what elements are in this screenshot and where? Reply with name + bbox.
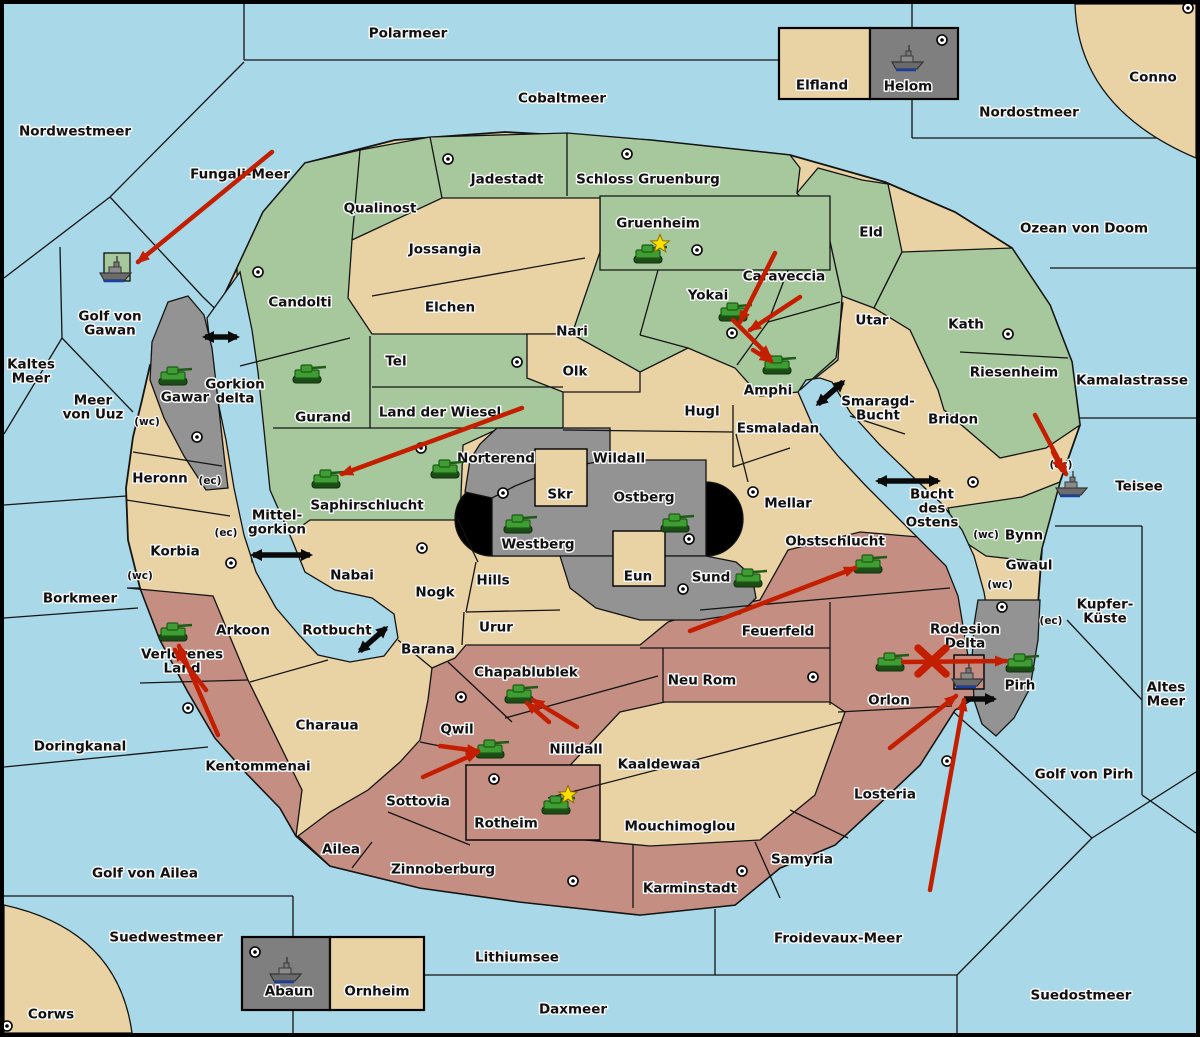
label-wildall: Wildall [593, 451, 645, 467]
svg-text:Tel: Tel [385, 354, 406, 370]
sea-label-golf-von-ailea: Golf von Ailea [92, 866, 198, 882]
svg-text:von Uuz: von Uuz [63, 407, 124, 423]
supply-dot-mellar [748, 487, 758, 497]
label-elfland: Elfland [796, 78, 848, 94]
label-sund: Sund [692, 570, 731, 586]
svg-text:Zinnoberburg: Zinnoberburg [391, 862, 495, 878]
svg-text:Sottovia: Sottovia [386, 794, 450, 810]
svg-text:Caraveccia: Caraveccia [743, 269, 825, 285]
coast-tag-1: (ec) [199, 475, 222, 487]
svg-text:Golf von Pirh: Golf von Pirh [1035, 767, 1134, 783]
label-nogk: Nogk [415, 585, 455, 601]
sea-label-altes-meer: AltesMeer [1147, 680, 1186, 710]
label-nilldall: Nilldall [549, 742, 602, 758]
svg-text:Nilldall: Nilldall [549, 742, 602, 758]
svg-text:Norterend: Norterend [457, 451, 535, 467]
sea-label-suedwestmeer: Suedwestmeer [109, 930, 223, 946]
svg-text:Saphirschlucht: Saphirschlucht [310, 498, 424, 514]
svg-text:Nogk: Nogk [415, 585, 455, 601]
label-heronn: Heronn [132, 471, 188, 487]
label-mellar: Mellar [764, 496, 812, 512]
supply-dot-schloss-gruenburg [622, 149, 632, 159]
label-gawar: Gawar [161, 390, 210, 406]
supply-dot-westberg [498, 488, 508, 498]
supply-dot-neu-rom [808, 672, 818, 682]
supply-dot-abaun [250, 947, 260, 957]
label-kentommenai: Kentommenai [205, 759, 310, 775]
label-qualinost: Qualinost [344, 201, 417, 217]
label-gurand: Gurand [295, 410, 351, 426]
svg-text:Barana: Barana [401, 642, 455, 658]
label-samyria: Samyria [771, 852, 833, 868]
svg-text:Samyria: Samyria [771, 852, 833, 868]
label-elchen: Elchen [425, 300, 475, 316]
supply-dot-nabai [417, 543, 427, 553]
svg-text:Westberg: Westberg [501, 537, 574, 553]
label-korbia: Korbia [150, 544, 200, 560]
supply-dot-yokai [727, 328, 737, 338]
svg-text:Gurand: Gurand [295, 410, 351, 426]
sea-label-froidevaux-meer: Froidevaux-Meer [774, 931, 902, 947]
svg-text:Charaua: Charaua [295, 718, 358, 734]
supply-dot-kentommenai [183, 703, 193, 713]
svg-text:Gawan: Gawan [84, 323, 135, 339]
label-eld: Eld [859, 225, 883, 241]
label-schloss-gruenburg: Schloss Gruenburg [576, 172, 720, 188]
sea-label-kamalastrasse: Kamalastrasse [1076, 373, 1188, 389]
supply-dot-bridon [968, 477, 978, 487]
supply-dot-candolti [253, 267, 263, 277]
sea-label-golf-von-gawan: Golf vonGawan [78, 309, 141, 339]
label-candolti: Candolti [268, 295, 331, 311]
supply-dot-karminstadt [737, 866, 747, 876]
label-skr: Skr [547, 487, 573, 503]
move-arrow-7 [903, 661, 1006, 662]
label-urur: Urur [479, 620, 513, 636]
supply-dot-gruenheim [692, 245, 702, 255]
strategy-map-stage: (wc)(ec)(ec)(wc)(wc)(ec)(wc)(ec)Polarmee… [0, 0, 1200, 1037]
svg-text:Froidevaux-Meer: Froidevaux-Meer [774, 931, 902, 947]
supply-dot-pirh [997, 602, 1007, 612]
label-sottovia: Sottovia [386, 794, 450, 810]
svg-text:Rotbucht: Rotbucht [302, 623, 372, 639]
label-charaua: Charaua [295, 718, 358, 734]
svg-text:Bynn: Bynn [1005, 528, 1043, 544]
svg-text:Kaaldewaa: Kaaldewaa [618, 757, 701, 773]
coast-tag-6: (wc) [987, 579, 1013, 591]
label-rotheim: Rotheim [474, 816, 538, 832]
label-corws: Corws [28, 1007, 74, 1023]
sea-label-daxmeer: Daxmeer [539, 1002, 607, 1018]
label-ailea: Ailea [322, 842, 360, 858]
supply-dot-gawar [192, 432, 202, 442]
svg-text:Bucht: Bucht [856, 408, 901, 424]
svg-text:Hills: Hills [476, 573, 509, 589]
svg-text:Teisee: Teisee [1115, 479, 1163, 495]
coast-tag-4: (wc) [973, 529, 999, 541]
supply-dot-tel [512, 357, 522, 367]
svg-text:Heronn: Heronn [132, 471, 188, 487]
sea-label-lithiumsee: Lithiumsee [475, 950, 559, 966]
svg-text:Kath: Kath [948, 317, 984, 333]
label-olk: Olk [562, 364, 588, 380]
svg-text:Gawar: Gawar [161, 390, 210, 406]
svg-text:Riesenheim: Riesenheim [970, 365, 1058, 381]
sea-label-teisee: Teisee [1115, 479, 1163, 495]
label-abaun: Abaun [265, 984, 313, 1000]
sea-label-cobaltmeer: Cobaltmeer [518, 91, 606, 107]
sea-label-nordwestmeer: Nordwestmeer [19, 124, 131, 140]
label-chapablublek: Chapablublek [474, 665, 579, 681]
sea-label-golf-von-pirh: Golf von Pirh [1035, 767, 1134, 783]
label-ornheim: Ornheim [344, 984, 409, 1000]
svg-text:Obstschlucht: Obstschlucht [785, 534, 885, 550]
svg-text:Ostens: Ostens [906, 515, 959, 531]
svg-text:Rotheim: Rotheim [474, 816, 538, 832]
coast-tag-2: (ec) [215, 527, 238, 539]
sea-label-kaltes-meer: KaltesMeer [7, 357, 55, 387]
coast-tag-3: (wc) [127, 570, 153, 582]
supply-dot-qwil [456, 692, 466, 702]
label-bynn: Bynn [1005, 528, 1043, 544]
svg-text:Ornheim: Ornheim [344, 984, 409, 1000]
label-ostberg: Ostberg [613, 490, 674, 506]
label-kath: Kath [948, 317, 984, 333]
label-esmaladan: Esmaladan [737, 421, 820, 437]
label-mouchimoglou: Mouchimoglou [624, 819, 735, 835]
label-losteria: Losteria [854, 787, 916, 803]
svg-text:Nordwestmeer: Nordwestmeer [19, 124, 131, 140]
svg-text:Orlon: Orlon [868, 693, 910, 709]
label-conno: Conno [1129, 70, 1177, 86]
svg-text:Borkmeer: Borkmeer [43, 591, 118, 607]
svg-text:Gruenheim: Gruenheim [616, 216, 700, 232]
label-arkoon: Arkoon [216, 623, 270, 639]
label-pirh: Pirh [1005, 678, 1036, 694]
svg-text:Jossangia: Jossangia [408, 242, 482, 258]
svg-text:Meer: Meer [1147, 694, 1186, 710]
svg-text:Helom: Helom [884, 79, 932, 95]
svg-text:Urur: Urur [479, 620, 513, 636]
sea-label-nordostmeer: Nordostmeer [979, 105, 1079, 121]
label-zinnoberburg: Zinnoberburg [391, 862, 495, 878]
svg-text:gorkion: gorkion [248, 522, 306, 538]
svg-text:Yokai: Yokai [687, 288, 729, 304]
svg-text:Nordostmeer: Nordostmeer [979, 105, 1079, 121]
svg-text:Ailea: Ailea [322, 842, 360, 858]
svg-text:Jadestadt: Jadestadt [470, 172, 544, 188]
svg-text:Mellar: Mellar [764, 496, 812, 512]
label-nabai: Nabai [330, 568, 374, 584]
svg-text:Polarmeer: Polarmeer [369, 26, 448, 42]
supply-dot-conno [1183, 3, 1193, 13]
sea-label-kupfer-kueste: Kupfer-Küste [1077, 597, 1134, 627]
label-eun: Eun [624, 569, 652, 585]
label-hugl: Hugl [684, 404, 719, 420]
label-westberg: Westberg [501, 537, 574, 553]
supply-dot-kath [1003, 329, 1013, 339]
sea-label-polarmeer: Polarmeer [369, 26, 448, 42]
svg-text:Doringkanal: Doringkanal [34, 739, 126, 755]
label-orlon: Orlon [868, 693, 910, 709]
svg-text:Eun: Eun [624, 569, 652, 585]
sea-label-rotbucht: Rotbucht [302, 623, 372, 639]
label-tel: Tel [385, 354, 406, 370]
svg-text:Golf von Ailea: Golf von Ailea [92, 866, 198, 882]
svg-text:Suedwestmeer: Suedwestmeer [109, 930, 223, 946]
svg-text:Conno: Conno [1129, 70, 1177, 86]
svg-text:Qualinost: Qualinost [344, 201, 417, 217]
label-qwil: Qwil [440, 722, 473, 738]
sea-label-suedostmeer: Suedostmeer [1031, 988, 1132, 1004]
supply-dot-zinnoberburg [568, 876, 578, 886]
label-norterend: Norterend [457, 451, 535, 467]
svg-text:Delta: Delta [945, 636, 986, 652]
supply-dot-jadestadt [443, 154, 453, 164]
svg-text:Kentommenai: Kentommenai [205, 759, 310, 775]
label-barana: Barana [401, 642, 455, 658]
svg-text:Mouchimoglou: Mouchimoglou [624, 819, 735, 835]
svg-text:Neu Rom: Neu Rom [668, 673, 737, 689]
sea-label-ozean-von-doom: Ozean von Doom [1020, 221, 1148, 237]
sea-label-mittel-gorkion: Mittel-gorkion [248, 508, 306, 538]
label-gruenheim: Gruenheim [616, 216, 700, 232]
svg-text:Gwaul: Gwaul [1006, 558, 1053, 574]
svg-text:Land der Wiesel: Land der Wiesel [379, 405, 501, 421]
svg-text:Amphi: Amphi [744, 383, 792, 399]
svg-text:Eld: Eld [859, 225, 883, 241]
svg-text:Olk: Olk [562, 364, 588, 380]
svg-text:Skr: Skr [547, 487, 573, 503]
svg-text:Bridon: Bridon [928, 412, 978, 428]
label-saphirschlucht: Saphirschlucht [310, 498, 424, 514]
label-amphi: Amphi [744, 383, 792, 399]
label-kaaldewaa: Kaaldewaa [618, 757, 701, 773]
svg-text:Elchen: Elchen [425, 300, 475, 316]
svg-text:Küste: Küste [1083, 611, 1126, 627]
svg-text:Corws: Corws [28, 1007, 74, 1023]
svg-text:Elfland: Elfland [796, 78, 848, 94]
coast-tag-7: (ec) [1040, 615, 1063, 627]
svg-text:Karminstadt: Karminstadt [643, 881, 738, 897]
svg-text:Meer: Meer [12, 371, 51, 387]
label-hills: Hills [476, 573, 509, 589]
supply-dot-sund [678, 584, 688, 594]
supply-dot-helom [937, 35, 947, 45]
label-yokai: Yokai [687, 288, 729, 304]
svg-text:Pirh: Pirh [1005, 678, 1036, 694]
svg-text:Korbia: Korbia [150, 544, 200, 560]
sea-label-doringkanal: Doringkanal [34, 739, 126, 755]
label-land-der-wiesel: Land der Wiesel [379, 405, 501, 421]
svg-text:Feuerfeld: Feuerfeld [742, 624, 815, 640]
label-nari: Nari [556, 324, 588, 340]
svg-text:Nari: Nari [556, 324, 588, 340]
supply-dot-korbia [226, 558, 236, 568]
label-jadestadt: Jadestadt [470, 172, 544, 188]
label-helom: Helom [884, 79, 932, 95]
svg-text:Wildall: Wildall [593, 451, 645, 467]
label-bridon: Bridon [928, 412, 978, 428]
svg-text:Ozean von Doom: Ozean von Doom [1020, 221, 1148, 237]
svg-text:Schloss Gruenburg: Schloss Gruenburg [576, 172, 720, 188]
label-gwaul: Gwaul [1006, 558, 1053, 574]
svg-text:Kamalastrasse: Kamalastrasse [1076, 373, 1188, 389]
svg-text:Daxmeer: Daxmeer [539, 1002, 607, 1018]
sea-label-borkmeer: Borkmeer [43, 591, 118, 607]
coast-tag-0: (wc) [134, 416, 160, 428]
svg-text:Ostberg: Ostberg [613, 490, 674, 506]
svg-text:Utar: Utar [855, 313, 889, 329]
supply-dot-rotheim [489, 774, 499, 784]
label-jossangia: Jossangia [408, 242, 482, 258]
svg-text:Arkoon: Arkoon [216, 623, 270, 639]
label-utar: Utar [855, 313, 889, 329]
label-caraveccia: Caraveccia [743, 269, 825, 285]
svg-text:Lithiumsee: Lithiumsee [475, 950, 559, 966]
svg-text:Losteria: Losteria [854, 787, 916, 803]
label-karminstadt: Karminstadt [643, 881, 738, 897]
svg-text:Esmaladan: Esmaladan [737, 421, 820, 437]
svg-text:Sund: Sund [692, 570, 731, 586]
supply-dot-ostberg [684, 534, 694, 544]
label-neu-rom: Neu Rom [668, 673, 737, 689]
svg-text:Suedostmeer: Suedostmeer [1031, 988, 1132, 1004]
svg-text:Qwil: Qwil [440, 722, 473, 738]
label-feuerfeld: Feuerfeld [742, 624, 815, 640]
svg-text:Abaun: Abaun [265, 984, 313, 1000]
label-obstschlucht: Obstschlucht [785, 534, 885, 550]
svg-text:Cobaltmeer: Cobaltmeer [518, 91, 606, 107]
label-riesenheim: Riesenheim [970, 365, 1058, 381]
svg-text:Chapablublek: Chapablublek [474, 665, 579, 681]
svg-text:Hugl: Hugl [684, 404, 719, 420]
svg-text:Candolti: Candolti [268, 295, 331, 311]
game-map: (wc)(ec)(ec)(wc)(wc)(ec)(wc)(ec)Polarmee… [0, 0, 1200, 1037]
svg-text:delta: delta [215, 391, 254, 407]
svg-text:Nabai: Nabai [330, 568, 374, 584]
